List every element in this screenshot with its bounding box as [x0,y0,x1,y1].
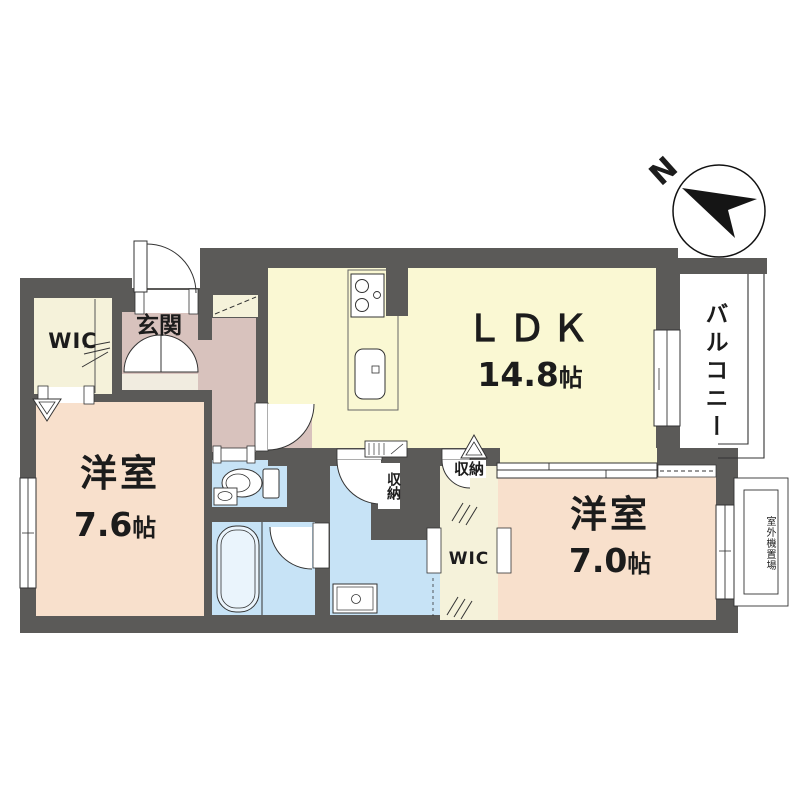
overhead-shelf-dashed-line [215,297,256,314]
ldk-door-icon [255,403,314,451]
floorplan-graphics [0,0,800,800]
room-label-bedroom-left: 洋室 [35,455,205,494]
stove-icon [351,274,384,317]
sliding-door-ldk-bedroom [497,463,657,478]
window-bedroom-right [716,505,734,599]
bedroom-left-size-unit: 帖 [132,514,156,542]
room-label-entrance: 玄関 [120,314,198,338]
shoe-cabinet-icon [124,335,198,372]
washer-pan-icon [333,584,377,613]
north-arrow [682,188,757,238]
bedroom-right-size-value: 7.0 [569,541,627,580]
room-label-wic-top: WIC [36,330,110,352]
bedroom-left-size-value: 7.6 [74,505,132,544]
dropped-wall-dashed [658,465,716,477]
ldk-size-value: 14.8 [477,355,558,394]
room-label-wic-center: WIC [439,551,499,569]
bathtub-icon [217,522,262,615]
room-label-ldk: ＬＤＫ [430,310,630,349]
room-size-ldk: 14.8帖 [430,358,630,393]
washroom-cabinet-icon [365,441,407,457]
compass-icon [673,165,765,257]
room-label-balcony: バルコニー [696,284,726,459]
bathroom-door-icon [270,523,329,569]
toilet-icon [214,469,279,505]
room-label-bedroom-right: 洋室 [525,496,695,535]
triangle-marker-up [461,435,487,458]
bedroom-right-size-unit: 帖 [627,550,651,578]
floor-plan: N WIC 玄関 ＬＤＫ 14.8帖 バルコニー 洋室 7.6帖 洋室 7.0帖… [0,0,800,800]
toilet-door-icon [213,446,255,463]
triangle-marker-down [33,399,61,421]
label-closet-washroom: 収納 [378,463,400,509]
ldk-size-unit: 帖 [559,364,583,392]
room-size-bedroom-left: 7.6帖 [30,508,200,543]
kitchen-counter-icon [348,248,408,410]
label-closet-ldk: 収納 [442,462,496,478]
sink-icon [355,349,385,399]
window-ldk-balcony [654,330,680,426]
closet-ldk-text: 収納 [452,460,486,478]
entrance-door-icon [134,241,198,314]
label-outdoor-unit: 室外機置場 [748,494,774,592]
room-size-bedroom-right: 7.0帖 [525,544,695,579]
